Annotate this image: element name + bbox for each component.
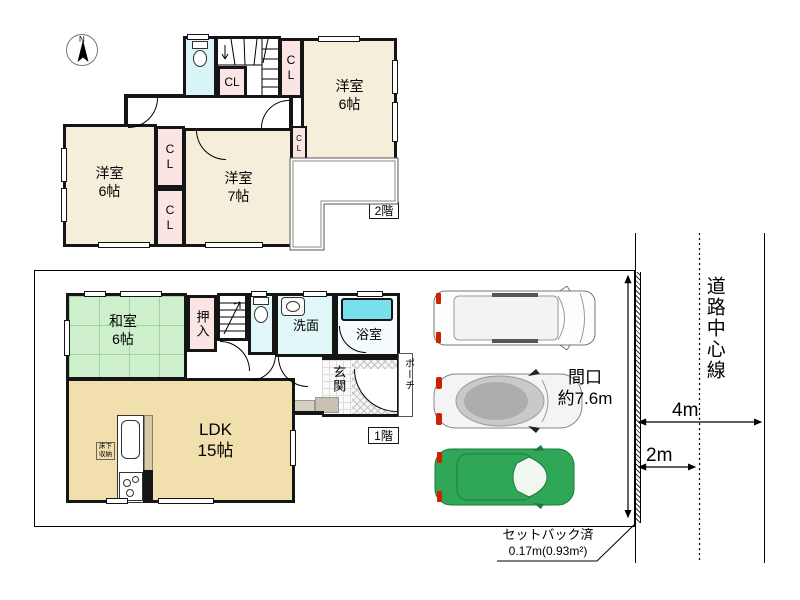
closet-2f-b: CL: [279, 38, 303, 98]
floor2-badge: 2階: [369, 202, 399, 219]
oshiire-closet: 押入: [187, 295, 217, 352]
bathtub-icon: [341, 298, 393, 321]
window: [187, 34, 209, 40]
closet-label: CL: [163, 203, 177, 233]
room-label: 洋室 7帖: [196, 170, 281, 205]
staircase-1f: [217, 293, 248, 341]
window: [158, 498, 214, 504]
room-label: 洋室 6帖: [72, 165, 147, 200]
window: [205, 242, 263, 248]
porch: ポーチ: [398, 353, 413, 417]
oshiire-label: 押入: [193, 310, 212, 338]
stairs-icon: [220, 296, 245, 338]
floor1-badge: 1階: [368, 427, 399, 444]
wall-segment: [293, 411, 324, 415]
setback-label: セットバック済: [502, 527, 593, 542]
setback-note: セットバック済 0.17m(0.93m²): [492, 527, 604, 558]
room-name: 洋室: [336, 78, 364, 94]
underfloor-label: 収納: [99, 451, 112, 458]
window: [98, 242, 150, 248]
underfloor-storage: 床下 収納: [96, 442, 115, 460]
room-size: 6帖: [339, 96, 361, 112]
toilet-icon: [193, 50, 207, 67]
closet-2f-e: CL: [155, 188, 185, 247]
toilet-icon: [192, 41, 208, 49]
door-arc: [261, 100, 289, 128]
dim-4m-label: 4m: [672, 399, 698, 423]
porch-label: ポーチ: [401, 358, 414, 391]
underfloor-label: 床下: [99, 443, 112, 450]
kitchen-sink-icon: [121, 420, 140, 459]
closet-label: CL: [295, 134, 304, 154]
room-label: LDK 15帖: [163, 419, 268, 462]
window: [61, 148, 67, 182]
room-size: 6帖: [112, 331, 134, 347]
balcony-label: バルコニー: [294, 164, 394, 183]
room-size: 6帖: [99, 183, 121, 199]
compass: N: [66, 34, 98, 66]
wall-segment: [143, 470, 153, 503]
room-name: 和室: [109, 313, 137, 329]
window: [84, 291, 106, 297]
room-name: 洋室: [96, 165, 124, 181]
room-label: 和室 6帖: [78, 313, 168, 348]
closet-label: CL: [224, 75, 239, 89]
room-size: 15帖: [198, 441, 234, 460]
setback-strip: [635, 272, 641, 523]
wall-segment: [289, 96, 293, 130]
closet-label: CL: [284, 53, 298, 83]
room-label: 洋室 6帖: [312, 78, 387, 113]
closet-2f-c: CL: [291, 126, 307, 162]
window: [290, 430, 296, 466]
stove-burner-icon: [123, 479, 131, 487]
setback-value: 0.17m(0.93m²): [509, 544, 588, 558]
window: [64, 320, 70, 356]
frontage-label: 間口 約7.6m: [540, 368, 630, 409]
toilet-icon: [254, 306, 268, 323]
closet-2f-a: CL: [217, 66, 247, 98]
room-size: 7帖: [228, 188, 250, 204]
dim-2m-label: 2m: [646, 444, 672, 468]
window: [392, 60, 398, 94]
genkan-label: 玄関: [330, 365, 346, 393]
floor1-badge-label: 1階: [374, 427, 393, 444]
stove-burner-icon: [126, 489, 134, 497]
toilet-icon: [253, 297, 269, 305]
floor-plan-canvas: N CL CL 洋室 6帖 CL 洋室 6: [0, 0, 800, 600]
window: [303, 291, 327, 297]
window: [392, 102, 398, 142]
closet-label: CL: [163, 142, 177, 172]
window: [106, 498, 128, 504]
sink-icon: [286, 301, 300, 312]
window: [251, 291, 267, 297]
kitchen-cabinet: [144, 415, 153, 472]
car-van: [432, 286, 598, 350]
road-center-label: 道路中心線: [702, 276, 726, 381]
window: [318, 36, 360, 42]
car-hatchback: [433, 445, 576, 509]
room-name: 洋室: [225, 170, 253, 186]
window: [120, 291, 162, 297]
stove-burner-icon: [132, 476, 139, 483]
senmen-label: 洗面: [283, 318, 329, 334]
frontage-value: 約7.6m: [558, 389, 613, 408]
window: [61, 188, 67, 222]
room-name: LDK: [199, 420, 232, 439]
frontage-title: 間口: [568, 368, 602, 387]
compass-north-label: N: [79, 35, 85, 45]
floor2-badge-label: 2階: [375, 202, 394, 219]
closet-2f-d: CL: [155, 126, 185, 188]
window: [357, 291, 383, 297]
